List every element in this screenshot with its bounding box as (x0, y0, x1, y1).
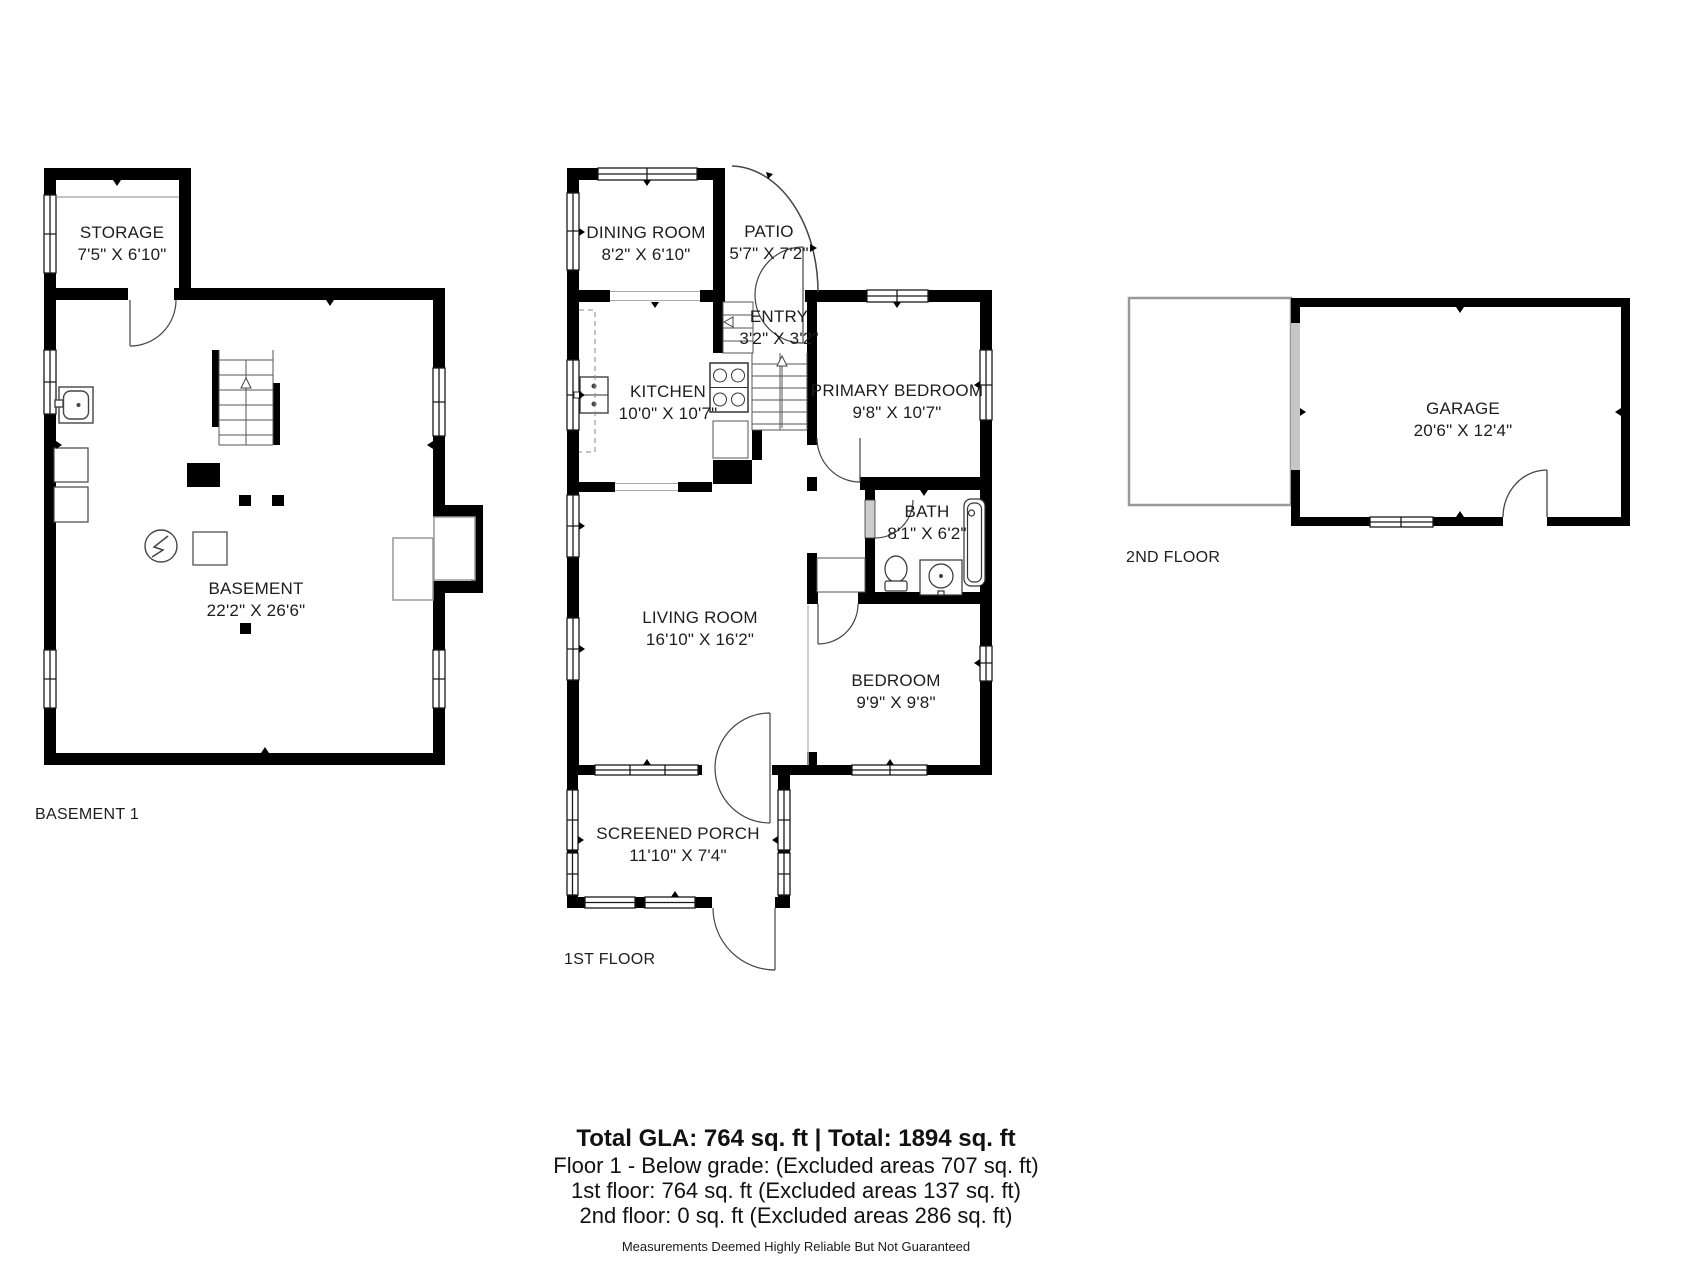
primary-bedroom-door-arc (817, 438, 860, 482)
second-floor-line: 2nd floor: 0 sq. ft (Excluded areas 286 … (396, 1203, 1196, 1228)
basement-door-opening (128, 288, 174, 300)
room-dims: 9'9" X 9'8" (851, 692, 940, 714)
garage-window (1370, 517, 1433, 527)
bath-sink-icon (920, 560, 962, 595)
garage-side-opening (1291, 323, 1300, 470)
room-name: BATH (887, 501, 966, 523)
room-name: GARAGE (1414, 398, 1513, 420)
room-name: ENTRY (739, 306, 818, 328)
room-dims: 8'2" X 6'10" (586, 244, 705, 266)
room-name: BASEMENT (207, 578, 306, 600)
room-label-patio: PATIO 5'7" X 7'2" (729, 221, 808, 265)
room-label-garage: GARAGE 20'6" X 12'4" (1414, 398, 1513, 442)
floor-label-second: 2ND FLOOR (1126, 549, 1220, 567)
first-floor-stairs (752, 353, 807, 430)
room-dims: 22'2" X 26'6" (207, 600, 306, 622)
room-name: DINING ROOM (586, 222, 705, 244)
stairs-down-arrow (777, 356, 787, 366)
house-outline-below (1129, 298, 1291, 505)
garage-door-arc (1503, 470, 1547, 517)
room-dims: 16'10" X 16'2" (642, 629, 758, 651)
toilet-icon (885, 556, 907, 591)
room-name: SCREENED PORCH (596, 823, 759, 845)
room-dims: 7'5" X 6'10" (77, 244, 166, 266)
garage-door-opening (1503, 517, 1547, 527)
room-label-kitchen: KITCHEN 10'0" X 10'7" (619, 381, 718, 425)
bathtub-icon (964, 499, 985, 586)
room-name: PATIO (729, 221, 808, 243)
room-label-dining: DINING ROOM 8'2" X 6'10" (586, 222, 705, 266)
room-label-living: LIVING ROOM 16'10" X 16'2" (642, 607, 758, 651)
room-name: STORAGE (77, 222, 166, 244)
second-floor-floorplan (1120, 290, 1640, 580)
room-label-bedroom: BEDROOM 9'9" X 9'8" (851, 670, 940, 714)
area-summary: Total GLA: 764 sq. ft | Total: 1894 sq. … (396, 1124, 1196, 1254)
utility-boxes (54, 448, 88, 522)
floor1-line: Floor 1 - Below grade: (Excluded areas 7… (396, 1153, 1196, 1178)
room-label-porch: SCREENED PORCH 11'10" X 7'4" (596, 823, 759, 867)
furnace-icon (193, 532, 227, 565)
room-label-bath: BATH 8'1" X 6'2" (887, 501, 966, 545)
storage-door-arc (130, 300, 176, 346)
room-dims: 3'2" X 3'2" (739, 328, 818, 350)
basement-stairs (212, 350, 280, 445)
room-name: KITCHEN (619, 381, 718, 403)
bedroom-door-arc (818, 604, 858, 644)
room-name: LIVING ROOM (642, 607, 758, 629)
floor-label-basement: BASEMENT 1 (35, 806, 139, 824)
total-gla-line: Total GLA: 764 sq. ft | Total: 1894 sq. … (396, 1124, 1196, 1153)
first-floor-line: 1st floor: 764 sq. ft (Excluded areas 13… (396, 1178, 1196, 1203)
disclaimer-text: Measurements Deemed Highly Reliable But … (396, 1239, 1196, 1254)
water-heater-icon (55, 387, 93, 423)
room-dims: 20'6" X 12'4" (1414, 420, 1513, 442)
room-dims: 5'7" X 7'2" (729, 243, 808, 265)
room-name: PRIMARY BEDROOM (811, 380, 983, 402)
room-dims: 10'0" X 10'7" (619, 403, 718, 425)
room-dims: 8'1" X 6'2" (887, 523, 966, 545)
bath-door-opening (865, 500, 875, 538)
floorplan-page: STORAGE 7'5" X 6'10" BASEMENT 22'2" X 26… (0, 0, 1706, 1280)
room-name: BEDROOM (851, 670, 940, 692)
electrical-panel-icon (145, 530, 177, 562)
room-label-storage: STORAGE 7'5" X 6'10" (77, 222, 166, 266)
porch-exit-door-arc (713, 908, 775, 970)
hall-closet (817, 558, 865, 592)
room-dims: 9'8" X 10'7" (811, 402, 983, 424)
room-label-entry: ENTRY 3'2" X 3'2" (739, 306, 818, 350)
room-dims: 11'10" X 7'4" (596, 845, 759, 867)
floor-label-first: 1ST FLOOR (564, 951, 655, 969)
room-label-primary-bedroom: PRIMARY BEDROOM 9'8" X 10'7" (811, 380, 983, 424)
room-label-basement: BASEMENT 22'2" X 26'6" (207, 578, 306, 622)
under-stairs-closet (713, 421, 748, 458)
stairs-up-arrow (241, 378, 251, 388)
